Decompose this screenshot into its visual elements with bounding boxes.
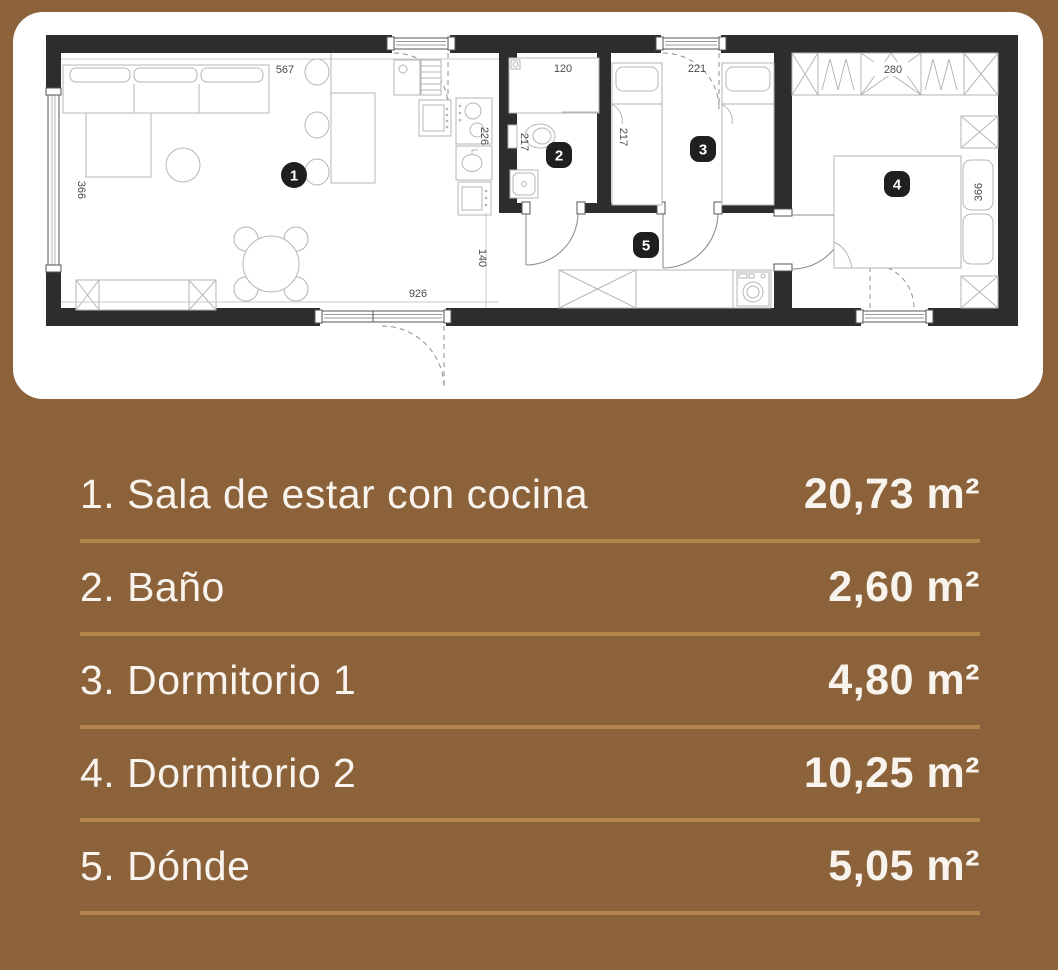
window-bottom-room4 (856, 308, 933, 326)
badge-number: 3 (699, 142, 707, 159)
bath-door-swing (526, 213, 578, 265)
legend-row-room4: 4. Dormitorio 2 10,25 m² (80, 729, 980, 822)
legend-row-room3: 3. Dormitorio 1 4,80 m² (80, 636, 980, 729)
legend-label: 3. Dormitorio 1 (80, 657, 356, 704)
legend-row-hall: 5. Dónde 5,05 m² (80, 822, 980, 915)
legend-area: 2,60 m² (828, 563, 980, 612)
dim-room3-side: 217 (617, 128, 629, 146)
room-badge-living: 1 (281, 162, 307, 188)
side-table (166, 148, 200, 182)
badge-number: 2 (555, 148, 563, 165)
badge-number: 4 (893, 177, 902, 194)
dining-table (234, 227, 308, 301)
balcony-door-swing-room3 (663, 53, 719, 109)
sofa (63, 65, 269, 177)
nightstand (961, 116, 998, 148)
room4-window-swing (870, 264, 914, 308)
room-badge-bath: 2 (546, 142, 572, 168)
legend-row-living: 1. Sala de estar con cocina 20,73 m² (80, 450, 980, 543)
kitchen-appliances (394, 60, 492, 215)
window-top-kitchen (387, 35, 455, 53)
toilet (508, 124, 555, 148)
dim-hall-width: 140 (476, 249, 488, 267)
dim-living-left: 366 (75, 181, 87, 199)
bed-single-right (722, 63, 774, 205)
room3-door-swing (663, 213, 718, 268)
storage-box (961, 276, 998, 308)
dim-bottom-width: 926 (409, 288, 427, 300)
dim-bath-top: 120 (554, 63, 572, 75)
bar-counter (305, 53, 375, 185)
bath-sink (510, 170, 538, 198)
dim-room3-top: 221 (688, 63, 706, 75)
legend-label: 1. Sala de estar con cocina (80, 471, 588, 518)
sideboard (76, 280, 216, 310)
dim-living-top: 567 (276, 64, 294, 76)
legend-area: 4,80 m² (828, 656, 980, 705)
room-badge-hall: 5 (633, 232, 659, 258)
washing-machine (737, 272, 769, 306)
page: { "colors": { "background": "#8b6239", "… (0, 0, 1058, 970)
floorplan-drawing: 567 366 226 120 217 221 217 280 366 926 … (13, 12, 1043, 399)
legend-label: 2. Baño (80, 564, 225, 611)
legend-label: 4. Dormitorio 2 (80, 750, 356, 797)
legend-label: 5. Dónde (80, 843, 250, 890)
entrance-window (315, 308, 451, 326)
kitchen-sink (456, 146, 492, 180)
room-badge-room4: 4 (884, 171, 910, 197)
badge-number: 1 (290, 168, 298, 185)
dim-bath-side: 217 (518, 133, 530, 151)
dim-kitchen-side: 226 (478, 127, 490, 145)
legend-row-bath: 2. Baño 2,60 m² (80, 543, 980, 636)
dim-room4-side: 366 (973, 183, 985, 201)
floorplan-card: 567 366 226 120 217 221 217 280 366 926 … (13, 12, 1043, 399)
entrance-door-swing (382, 326, 444, 388)
badge-number: 5 (642, 238, 650, 255)
dim-room4-top: 280 (884, 64, 902, 76)
legend-area: 20,73 m² (804, 470, 980, 519)
bed-double (834, 156, 993, 268)
room-legend: 1. Sala de estar con cocina 20,73 m² 2. … (80, 450, 980, 915)
legend-area: 10,25 m² (804, 749, 980, 798)
room-badge-room3: 3 (690, 136, 716, 162)
window-left (46, 88, 61, 272)
window-top-room3 (656, 35, 726, 53)
legend-area: 5,05 m² (828, 842, 980, 891)
